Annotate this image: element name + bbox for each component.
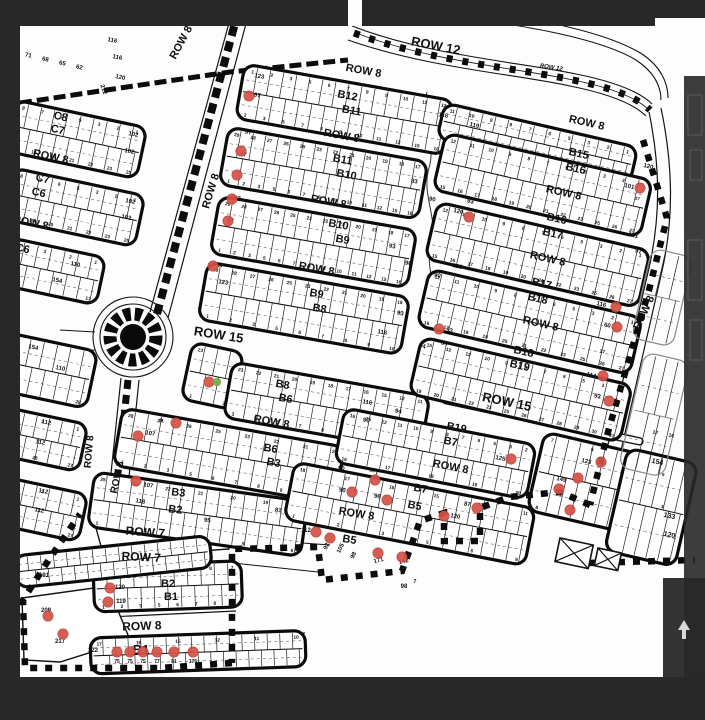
block-label: B3 bbox=[171, 486, 186, 499]
plot-number: 12 bbox=[215, 637, 221, 643]
plot-number: 15 bbox=[175, 639, 181, 645]
sold-plot-marker-dot bbox=[598, 371, 608, 381]
sold-plot-marker-dot bbox=[373, 548, 383, 558]
sold-plot-marker-dot bbox=[506, 454, 516, 464]
plot-label: 98 bbox=[401, 584, 408, 590]
plot-number: 17 bbox=[96, 642, 102, 648]
plot-label: 119 bbox=[116, 599, 126, 605]
plot-label: 7 bbox=[414, 579, 417, 585]
sold-plot-marker-dot bbox=[611, 302, 621, 312]
frame-notch bbox=[348, 0, 362, 26]
sold-plot-marker-dot bbox=[612, 322, 622, 332]
block-label: B9 bbox=[335, 233, 351, 247]
sold-plot-marker-dot bbox=[434, 324, 444, 334]
sold-plot-marker-dot bbox=[131, 476, 141, 486]
sold-plot-marker-dot bbox=[171, 418, 181, 428]
plot-number: 11 bbox=[254, 636, 260, 642]
sold-plot-marker-dot bbox=[382, 495, 392, 505]
sold-plot-marker-dot bbox=[105, 583, 115, 593]
sold-plot-marker-dot bbox=[554, 484, 564, 494]
sold-plot-marker-dot bbox=[227, 194, 237, 204]
plot-label: 217 bbox=[55, 639, 66, 645]
sold-plot-marker-dot bbox=[397, 552, 407, 562]
sold-plot-marker-dot bbox=[204, 377, 214, 387]
available-plot-marker-dot bbox=[213, 378, 221, 386]
sold-plot-marker-dot bbox=[232, 170, 242, 180]
sold-plot-marker-dot bbox=[188, 647, 198, 657]
sold-plot-marker-dot bbox=[208, 261, 218, 271]
sold-plot-marker-dot bbox=[370, 475, 380, 485]
sold-plot-marker-dot bbox=[464, 212, 474, 222]
plot-label: 122 bbox=[88, 648, 99, 654]
block-label: B8 bbox=[275, 378, 291, 392]
row-label: ROW 8 bbox=[122, 618, 162, 633]
plot-label: 75 bbox=[114, 659, 120, 665]
plot-label: 75 bbox=[140, 659, 146, 665]
row-label: ROW 7 bbox=[121, 549, 161, 565]
sold-plot-marker-dot bbox=[472, 503, 482, 513]
block-label: B8 bbox=[312, 302, 328, 316]
site-plan-viewer: 8765321181920212223258765321181920212223… bbox=[0, 0, 705, 720]
frame-bar bbox=[0, 677, 705, 720]
plot-label: 75 bbox=[127, 659, 133, 665]
sold-plot-marker-dot bbox=[103, 597, 113, 607]
block-label: B9 bbox=[309, 287, 325, 301]
sold-plot-marker-dot bbox=[133, 431, 143, 441]
plot-label: 191 bbox=[39, 573, 50, 579]
sold-plot-marker-dot bbox=[138, 647, 148, 657]
sold-plot-marker-dot bbox=[125, 647, 135, 657]
sold-plot-marker-dot bbox=[635, 183, 645, 193]
sold-plot-marker-dot bbox=[573, 473, 583, 483]
row-label: ROW 7 bbox=[125, 524, 166, 541]
frame-bar bbox=[0, 18, 20, 677]
plot-number: 10 bbox=[293, 635, 299, 641]
site-plan-map[interactable]: 8765321181920212223258765321181920212223… bbox=[0, 0, 705, 720]
sold-plot-marker-dot bbox=[236, 146, 246, 156]
sold-plot-marker-dot bbox=[169, 647, 179, 657]
plot-label: 77 bbox=[154, 659, 160, 665]
block-label: B2 bbox=[161, 578, 175, 590]
frame-bar bbox=[0, 0, 655, 26]
sold-plot-marker-dot bbox=[152, 647, 162, 657]
sold-plot-marker-dot bbox=[325, 533, 335, 543]
block-label: B6 bbox=[278, 392, 294, 406]
block-label: B3 bbox=[266, 456, 282, 470]
utility-xbox bbox=[594, 548, 621, 571]
sold-plot-marker-dot bbox=[112, 647, 122, 657]
block-label: B2 bbox=[168, 503, 183, 516]
roundabout-center bbox=[120, 324, 146, 350]
sold-plot-marker-dot bbox=[311, 527, 321, 537]
sold-plot-marker-dot bbox=[439, 511, 449, 521]
sold-plot-marker-dot bbox=[58, 629, 68, 639]
plot-label: 176 bbox=[189, 659, 198, 665]
plot-label: 112 bbox=[301, 528, 311, 534]
block-label: B1 bbox=[164, 591, 178, 603]
block-label: B6 bbox=[263, 442, 279, 456]
sold-plot-marker-dot bbox=[223, 216, 233, 226]
plot-label: 120 bbox=[115, 585, 126, 591]
sold-plot-marker-dot bbox=[604, 396, 614, 406]
sold-plot-marker-dot bbox=[244, 91, 254, 101]
sold-plot-marker-dot bbox=[596, 457, 606, 467]
sold-plot-marker-dot bbox=[43, 611, 53, 621]
sold-plot-marker-dot bbox=[347, 487, 357, 497]
plot-label: 81 bbox=[171, 659, 177, 665]
sold-plot-marker-dot bbox=[565, 505, 575, 515]
